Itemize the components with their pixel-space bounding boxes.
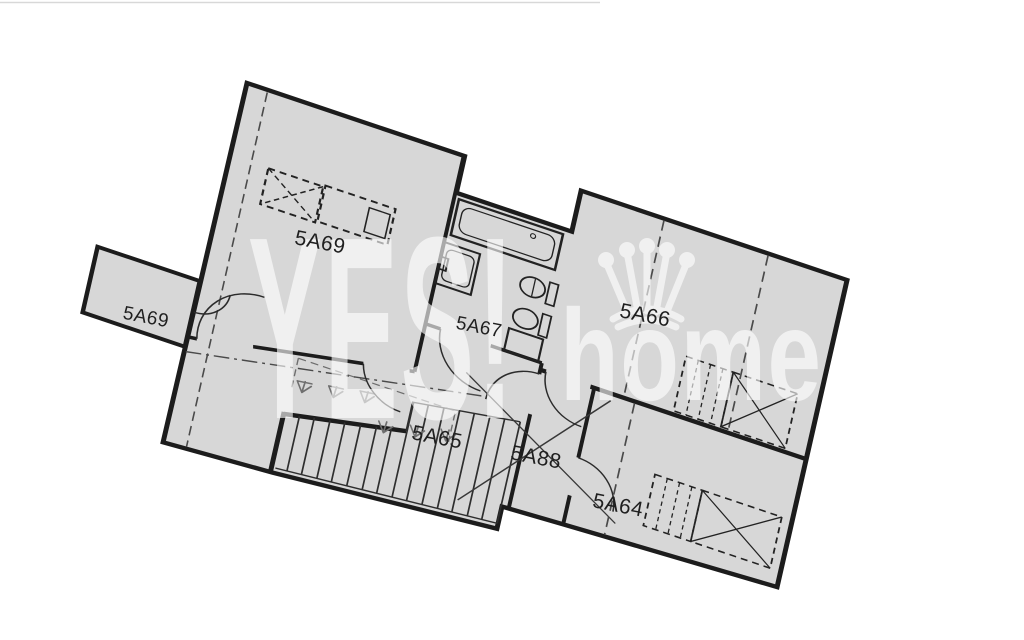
floor-plan-canvas: YES! home 5A69 5A69 5A67 5A66 5A65 5A88 … bbox=[0, 0, 1024, 640]
watermark-text-home: home bbox=[560, 283, 822, 429]
floor-plan-page: YES! home 5A69 5A69 5A67 5A66 5A65 5A88 … bbox=[0, 0, 1024, 640]
balcony-outline bbox=[83, 247, 200, 347]
